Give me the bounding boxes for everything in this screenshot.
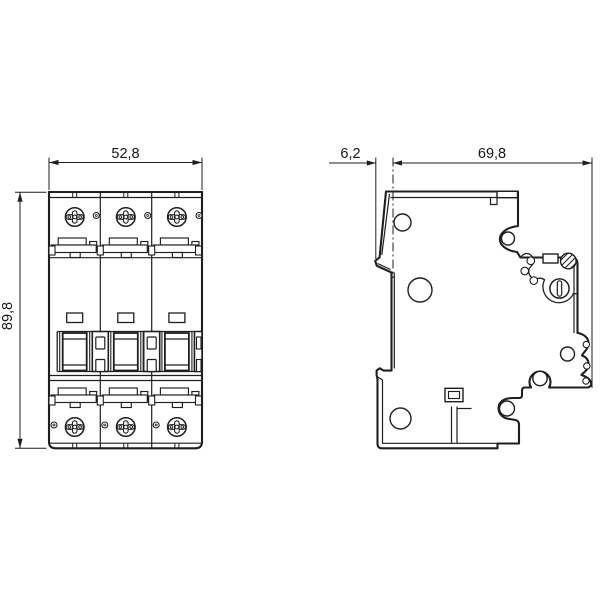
arrowhead <box>583 160 593 165</box>
side-offset-label: 6,2 <box>340 146 360 162</box>
front-view <box>49 192 202 448</box>
screw-head-icon <box>168 208 187 227</box>
screw-head-icon <box>65 208 84 227</box>
top-notch <box>497 191 518 197</box>
side-rect-hole <box>543 254 558 263</box>
dimensional-drawing: 52,8 89,8 6,2 69,8 <box>0 0 600 600</box>
switch-toggles <box>57 332 202 372</box>
technical-drawing-canvas: 52,8 89,8 6,2 69,8 <box>0 0 600 600</box>
screw-head-icon <box>117 418 136 437</box>
arrowhead <box>367 160 376 165</box>
right-edge-block <box>195 332 203 372</box>
screw-head-icon <box>168 418 187 437</box>
front-height-label: 89,8 <box>0 302 16 330</box>
arrowhead <box>393 160 402 165</box>
adjustment-screw-icon <box>550 279 569 298</box>
side-view <box>375 191 591 448</box>
terminal-clamps-top <box>49 238 202 258</box>
screw-head-icon <box>65 418 84 437</box>
front-height-dimension <box>15 192 47 448</box>
arrowhead <box>49 160 59 165</box>
terminal-clamps-bottom <box>49 388 202 408</box>
front-width-label: 52,8 <box>111 146 139 162</box>
arrowhead <box>193 160 203 165</box>
front-width-dimension <box>49 158 202 191</box>
arrowhead <box>17 439 22 449</box>
screw-head-icon <box>117 208 136 227</box>
side-depth-label: 69,8 <box>478 146 506 162</box>
arrowhead <box>17 192 22 202</box>
